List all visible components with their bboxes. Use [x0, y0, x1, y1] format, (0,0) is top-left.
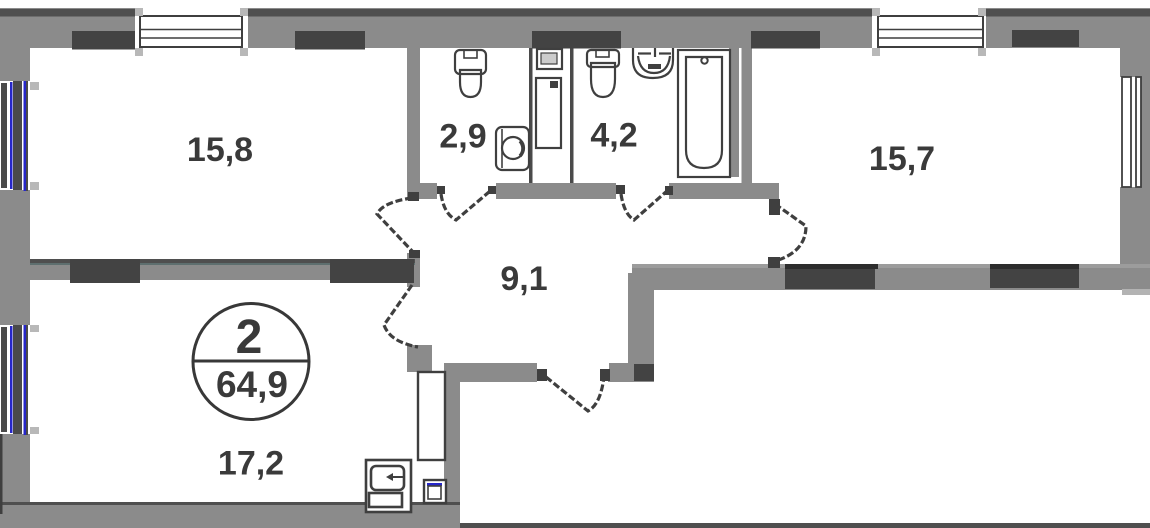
svg-text:64,9: 64,9	[216, 364, 288, 405]
svg-text:4,2: 4,2	[590, 117, 637, 155]
svg-text:17,2: 17,2	[218, 445, 284, 483]
svg-text:15,7: 15,7	[869, 140, 935, 178]
svg-text:2: 2	[236, 311, 263, 364]
svg-text:15,8: 15,8	[187, 131, 253, 169]
svg-text:2,9: 2,9	[439, 118, 486, 156]
svg-text:9,1: 9,1	[500, 260, 547, 298]
